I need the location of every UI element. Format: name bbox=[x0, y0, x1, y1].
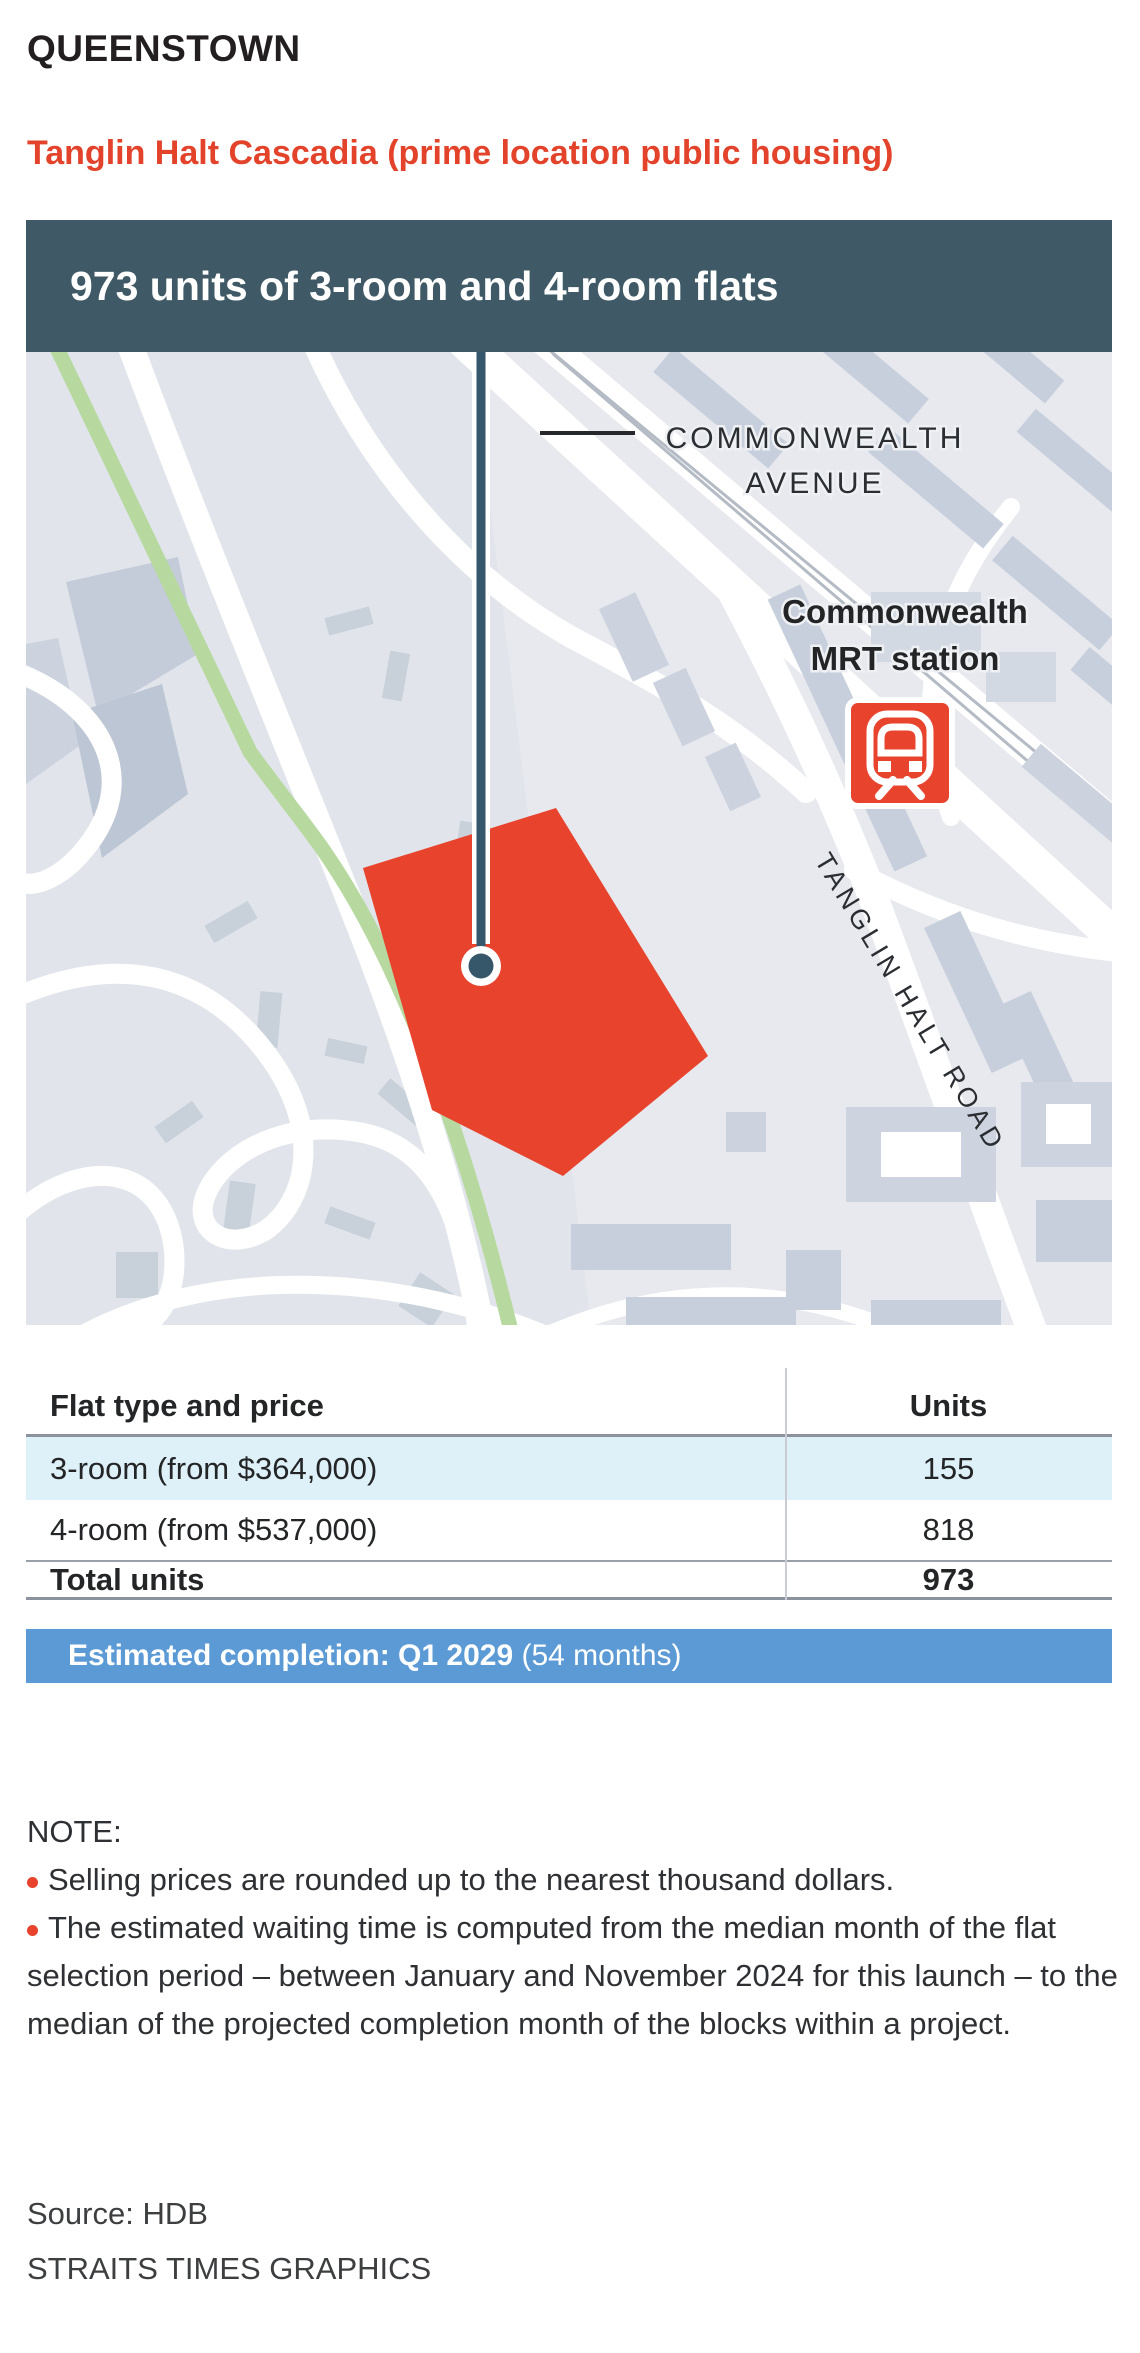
avenue-label-line1: COMMONWEALTH bbox=[666, 422, 965, 455]
table-total-row: Total units 973 bbox=[26, 1562, 1112, 1597]
table-header-units: Units bbox=[785, 1388, 1112, 1424]
map-canvas: COMMONWEALTH AVENUE Commonwealth MRT sta… bbox=[26, 352, 1112, 1325]
completion-banner-bold: Estimated completion: Q1 2029 bbox=[68, 1639, 513, 1672]
source-line: Source: HDB bbox=[27, 2186, 431, 2241]
table-cell-units: 818 bbox=[785, 1512, 1112, 1548]
note-item-text: Selling prices are rounded up to the nea… bbox=[48, 1862, 894, 1897]
bullet-icon bbox=[27, 1925, 38, 1936]
table-total-units: 973 bbox=[785, 1562, 1112, 1598]
mrt-label-line2: MRT station bbox=[811, 640, 1000, 677]
credit-line: STRAITS TIMES GRAPHICS bbox=[27, 2241, 431, 2296]
table-cell-label: 4-room (from $537,000) bbox=[26, 1512, 785, 1548]
notes-section: NOTE: Selling prices are rounded up to t… bbox=[27, 1808, 1119, 2048]
table-column-divider bbox=[785, 1368, 787, 1600]
region-title: QUEENSTOWN bbox=[27, 28, 301, 70]
location-map: COMMONWEALTH AVENUE Commonwealth MRT sta… bbox=[26, 352, 1112, 1325]
footer: Source: HDB STRAITS TIMES GRAPHICS bbox=[27, 2186, 431, 2296]
table-cell-label: 3-room (from $364,000) bbox=[26, 1451, 785, 1487]
table-total-label: Total units bbox=[26, 1562, 785, 1598]
table-header-row: Flat type and price Units bbox=[26, 1368, 1112, 1434]
flat-table: Flat type and price Units 3-room (from $… bbox=[26, 1368, 1112, 1600]
units-banner: 973 units of 3-room and 4-room flats bbox=[26, 220, 1112, 352]
completion-banner: Estimated completion: Q1 2029 (54 months… bbox=[26, 1629, 1112, 1683]
notes-heading: NOTE: bbox=[27, 1808, 1119, 1856]
table-header-flat-type: Flat type and price bbox=[26, 1388, 785, 1424]
mrt-label-line1: Commonwealth bbox=[782, 593, 1028, 630]
bullet-icon bbox=[27, 1877, 38, 1888]
note-item: Selling prices are rounded up to the nea… bbox=[27, 1856, 1119, 1904]
table-cell-units: 155 bbox=[785, 1451, 1112, 1487]
infographic-page: QUEENSTOWN Tanglin Halt Cascadia (prime … bbox=[0, 0, 1140, 2353]
units-banner-text: 973 units of 3-room and 4-room flats bbox=[26, 263, 779, 310]
note-item-text: The estimated waiting time is computed f… bbox=[27, 1910, 1118, 2041]
mrt-station-icon bbox=[848, 700, 952, 806]
note-item: The estimated waiting time is computed f… bbox=[27, 1904, 1119, 2048]
avenue-label-line2: AVENUE bbox=[745, 467, 884, 500]
site-marker-dot bbox=[469, 954, 494, 979]
table-row: 4-room (from $537,000) 818 bbox=[26, 1500, 1112, 1560]
table-row: 3-room (from $364,000) 155 bbox=[26, 1437, 1112, 1500]
project-title: Tanglin Halt Cascadia (prime location pu… bbox=[27, 134, 893, 173]
completion-banner-regular: (54 months) bbox=[513, 1639, 681, 1672]
